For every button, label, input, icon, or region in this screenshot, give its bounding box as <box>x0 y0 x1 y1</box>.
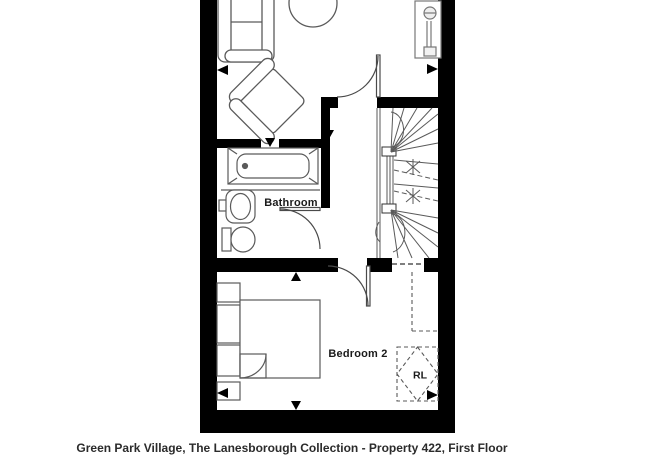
floorplan-drawing: Bathroom Bedroom 2 RL <box>0 0 650 450</box>
toilet <box>222 227 255 252</box>
bathtub <box>221 148 320 190</box>
wall-bathroom-right <box>321 97 330 208</box>
washbasin <box>219 190 255 223</box>
armchair <box>223 56 314 147</box>
bedroom2-label: Bedroom 2 <box>328 348 387 360</box>
restricted-headroom-lines <box>412 272 438 331</box>
bathroom-label: Bathroom <box>264 197 318 209</box>
wall-bedroom-top-left <box>217 258 338 272</box>
stair-treads-top <box>391 108 438 152</box>
landing-door <box>337 55 380 97</box>
wall-landing-stub <box>330 97 338 108</box>
floorplan: Bathroom Bedroom 2 RL <box>0 0 650 450</box>
stair-direction-arrows <box>406 159 420 204</box>
double-bed <box>240 300 320 378</box>
marker-bedroom-top <box>291 272 301 281</box>
wall-bottom <box>200 410 455 433</box>
wall-right <box>438 0 455 433</box>
wall-left <box>200 0 217 433</box>
marker-right-bedroom <box>427 390 438 400</box>
sofa <box>218 0 274 62</box>
wall-bathroom-top-left <box>217 139 261 148</box>
wall-bedroom-top-mid <box>367 258 392 272</box>
wall-stairs-top <box>377 97 438 108</box>
marker-left-living <box>217 65 228 75</box>
stair-treads-middle <box>394 160 438 201</box>
plan-caption: Green Park Village, The Lanesborough Col… <box>0 441 584 455</box>
rooflight-label: RL <box>413 370 428 382</box>
marker-bottom-wall <box>291 401 301 410</box>
radiator <box>415 1 441 58</box>
wall-bedroom-top-right <box>424 258 438 272</box>
stair-treads-bottom <box>376 210 438 258</box>
coffee-table <box>289 0 337 27</box>
winder-staircase <box>376 108 438 258</box>
bathroom-door <box>280 208 320 250</box>
marker-right-living <box>427 64 438 74</box>
built-in-units <box>217 283 240 400</box>
